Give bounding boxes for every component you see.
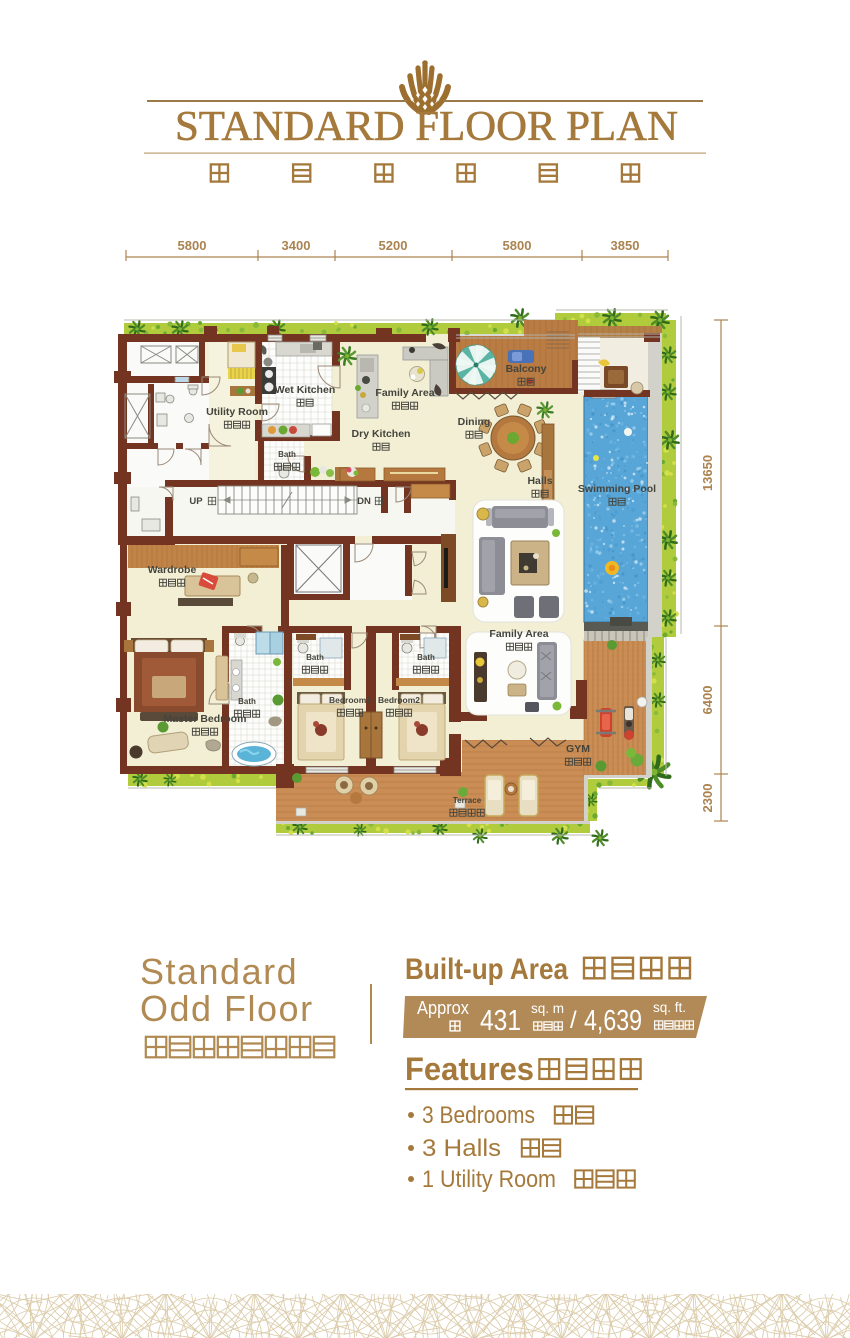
svg-text:6400: 6400 [700,686,715,715]
svg-text:3850: 3850 [611,238,640,253]
svg-text:GYM: GYM [566,743,590,755]
svg-text:Wet Kitchen: Wet Kitchen [275,384,335,396]
svg-text:Features: Features [405,1051,534,1087]
svg-text:UP: UP [189,496,203,507]
svg-text:Swimming Pool: Swimming Pool [578,483,656,495]
svg-text:3400: 3400 [282,238,311,253]
svg-text:4,639: 4,639 [584,1005,642,1037]
svg-text:Bath: Bath [278,450,296,459]
svg-text:5800: 5800 [178,238,207,253]
svg-text:431: 431 [480,1005,521,1037]
svg-text:3 Halls: 3 Halls [422,1135,501,1162]
svg-text:sq. m: sq. m [531,1001,564,1016]
svg-text:13650: 13650 [700,455,715,491]
svg-text:DN: DN [357,496,371,507]
svg-text:sq. ft.: sq. ft. [653,1000,686,1015]
svg-text:/: / [570,1007,577,1034]
svg-text:Bath: Bath [238,697,256,706]
svg-text:Halls: Halls [527,475,552,487]
svg-text:3 Bedrooms: 3 Bedrooms [422,1102,535,1129]
svg-text:5200: 5200 [379,238,408,253]
svg-text:Standard: Standard [140,951,298,992]
svg-text:Dry Kitchen: Dry Kitchen [352,428,411,440]
svg-text:Family Area: Family Area [489,628,548,640]
svg-text:Terrace: Terrace [453,796,482,805]
svg-text:Utility Room: Utility Room [206,406,268,418]
svg-text:1 Utility Room: 1 Utility Room [422,1166,556,1193]
svg-text:Bedroom1: Bedroom1 [329,695,371,705]
svg-text:Wardrobe: Wardrobe [148,564,197,576]
svg-text:2300: 2300 [700,784,715,813]
svg-text:Odd Floor: Odd Floor [140,988,314,1029]
svg-text:Balcony: Balcony [506,363,547,375]
svg-text:Bath: Bath [306,653,324,662]
svg-text:Dining: Dining [458,416,491,428]
svg-text:Built-up Area: Built-up Area [405,953,568,986]
svg-text:5800: 5800 [503,238,532,253]
svg-text:Family Area: Family Area [375,387,434,399]
svg-text:Approx: Approx [417,998,469,1018]
svg-text:Bedroom2: Bedroom2 [378,695,420,705]
svg-text:Bath: Bath [417,653,435,662]
svg-text:STANDARD FLOOR PLAN: STANDARD FLOOR PLAN [175,104,678,150]
